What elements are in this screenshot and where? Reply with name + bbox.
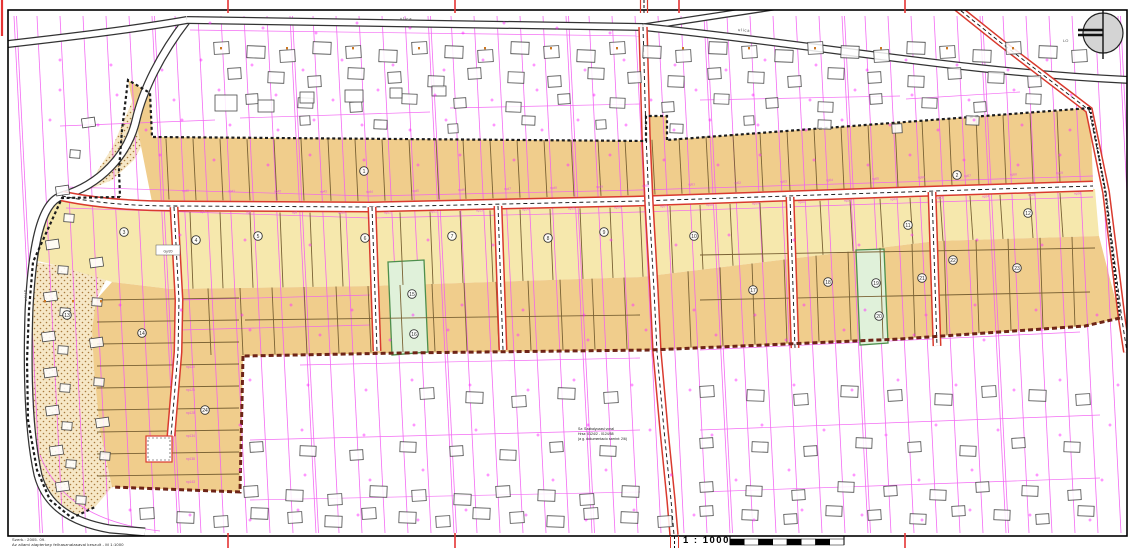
building [870,94,883,105]
building [744,116,754,126]
building [1078,506,1094,517]
building [708,68,722,80]
parcel-line [190,30,640,36]
building [300,446,316,457]
building [982,386,997,398]
building [412,490,427,502]
building [244,486,259,498]
parcel-label: np25 [1028,193,1036,197]
parcel-label: np59 [1056,171,1064,175]
building [445,46,463,59]
parcel-label: np42 [274,189,282,193]
zone-marker-number: 11 [905,223,910,229]
building [643,46,661,59]
building [100,452,111,461]
house-number-mark [286,47,288,49]
building [948,68,962,80]
parcel-label: np8 [246,210,252,214]
building [670,124,683,133]
building [379,50,397,63]
building [766,98,779,109]
building [350,450,364,461]
building [251,508,268,520]
building [973,50,991,63]
building [668,76,684,88]
parcel-label: np120 [186,365,195,369]
house-number-mark [44,300,46,302]
house-number-mark [72,300,74,302]
zone-marker-number: 24 [202,408,208,414]
parcel-label: np12 [430,209,438,213]
scale-bar-segment [759,539,773,545]
building [400,442,416,453]
building [390,88,402,98]
zone-marker-number: 5 [257,234,260,240]
building [974,102,987,113]
parcel-label: np138 [186,457,195,461]
building [500,450,516,461]
parcel-label: np134 [186,434,195,438]
parcel-label: np43 [320,189,328,193]
building [588,68,604,80]
building [1076,394,1091,406]
road-fill [187,20,643,27]
zone-marker-number: 21 [919,276,925,282]
parcel-label: np11 [384,210,391,214]
building [1068,490,1082,501]
parcel-label: np143 [186,480,195,484]
house-number-mark [880,47,882,49]
house-number-mark [484,47,486,49]
building [662,102,675,113]
scale-bar-segment [801,539,815,545]
building [522,116,535,125]
building [140,508,155,520]
house-number-mark [550,47,552,49]
parcel-label: np58 [1010,172,1018,176]
building [658,516,673,528]
parcel-label: np52 [734,181,742,185]
building [454,98,467,109]
zone-marker-number: 22 [950,258,956,264]
building [41,331,55,342]
building [604,392,619,404]
cul-de-sac [146,436,172,462]
building [268,72,284,84]
zone-marker-number: 10 [691,234,697,240]
building [752,442,768,453]
building [700,386,715,398]
building [228,68,242,80]
scale-bar-segment [830,539,844,545]
building [908,442,922,453]
building [258,100,274,112]
parcel-label: np7 [200,210,206,214]
building [988,72,1004,84]
parcel-label: np49 [596,185,604,189]
house-number-mark [616,47,618,49]
parcel-label: np22 [890,197,898,201]
building [300,92,314,103]
building [709,42,727,55]
building [804,446,818,457]
zone-marker-number: 2 [956,173,959,179]
scale-bar-segment [730,539,744,545]
building [1064,442,1080,453]
zone-marker-number: 4 [195,238,198,244]
zone-marker-number: 8 [547,236,550,242]
building [402,94,417,105]
parcel-label: np47 [504,187,512,191]
zone-marker-number: 15 [409,292,415,298]
building [700,438,714,449]
building [45,405,59,416]
parcel-label: np55 [872,177,880,181]
building [910,514,926,525]
building [450,446,464,457]
scale-bar-segment [773,539,787,545]
building [60,384,71,393]
building [246,94,259,105]
building [548,76,562,88]
parcel-line [700,415,1100,430]
house-number-mark [1012,47,1014,49]
building [621,512,638,524]
building [828,68,844,80]
footer-note-line2: Az allami alapterkep felhasznalasaval ke… [12,542,124,547]
parcel-label: np19 [752,201,760,205]
building [577,50,595,63]
building [1039,46,1057,59]
building [95,417,109,428]
building [436,516,451,528]
building [58,346,69,355]
building [328,494,343,506]
parcel-label: np26 [1074,191,1082,195]
building [478,50,494,63]
building [70,150,81,159]
building [892,124,902,134]
building [746,486,762,497]
building [348,68,364,80]
parcel-label: np14 [522,207,530,211]
building [428,76,444,88]
footer-notes: Szerk.: 2005. 09. Az allami alapterkep f… [12,537,124,547]
road-fill [643,3,800,27]
building [952,506,966,517]
parcel-label: np45 [412,189,420,193]
building [214,516,229,528]
building [841,386,858,398]
building [538,490,555,502]
street-name-label: ulica [738,27,751,33]
parcel-label: np57 [964,174,972,178]
green-space-parcel [388,260,428,355]
building [62,422,73,431]
building [826,506,842,517]
building [362,508,377,520]
building [747,390,764,402]
zone-marker-number: 3 [123,230,126,236]
parcel-label: np46 [458,188,466,192]
building [922,98,937,109]
building [43,367,57,378]
building [420,388,435,400]
building [345,90,363,102]
street-name-label: ulica [400,16,412,21]
building [1012,438,1026,449]
parcel-label: np51 [688,182,696,186]
building [874,50,890,63]
building [94,378,105,387]
house-number-mark [100,300,102,302]
building [66,460,77,469]
building [994,510,1010,521]
parcel-label: np23 [936,196,944,200]
scale-bar [730,536,844,545]
scale-bar-segment [816,539,830,545]
building [1029,390,1046,402]
building [676,50,692,63]
house-number-mark [352,47,354,49]
building [215,95,237,111]
building [788,76,802,88]
parcel-label: np44 [366,190,374,194]
building [250,442,264,453]
parcel-label: np125 [186,388,195,392]
building [89,337,103,348]
building [884,486,898,497]
building [976,482,990,493]
house-number-mark [418,47,420,49]
parcel-label: np48 [550,186,558,190]
building [742,510,758,521]
building [432,86,446,96]
building [550,442,564,453]
zone-marker-number: 14 [139,331,145,337]
building [374,120,387,129]
annotation-line3: (a g. dokumentacio szerint: 2/6) [578,437,627,442]
building [960,446,976,457]
building [45,239,59,250]
building [580,494,595,506]
parcel-line [240,112,430,118]
building [286,490,303,502]
parcel-label: np15 [568,206,576,210]
building [856,438,872,449]
building [818,120,831,129]
building [628,72,642,84]
house-number-mark [946,47,948,49]
zone-marker-number: 13 [64,313,70,319]
building [55,481,69,492]
building [794,394,809,406]
cadastral-map: Gy/20ulicaulicaulicanp40np41np42np43np44… [0,0,1129,548]
building [547,516,564,528]
building [784,514,798,525]
house-number-mark [220,47,222,49]
building [908,76,924,88]
house-number-mark [682,47,684,49]
building [508,72,524,84]
zone-marker-number: 19 [873,281,879,287]
building [600,446,616,457]
building [1028,76,1042,88]
house-number-mark [748,47,750,49]
parcel-line [300,358,640,365]
map-annotation: Sz: Szabalyozasi vonal Hrsz: 0124/2 - 01… [578,427,627,443]
building [473,508,490,520]
building [300,116,310,126]
zone-marker-number: 1 [363,169,366,175]
building [399,512,416,524]
parcel-label: np10 [338,210,346,214]
parcel-label: np17 [660,204,668,208]
building [622,486,639,498]
building [558,94,571,105]
parcel-label: np20 [798,200,806,204]
building [89,257,103,268]
road-fill [8,20,187,44]
zone-marker-number: 18 [825,280,831,286]
building [496,486,511,498]
parcel-label: np53 [780,179,788,183]
building [506,102,521,113]
building [177,512,194,524]
building [775,50,793,63]
building [930,490,946,501]
scale-bar-segment [787,539,801,545]
building [308,76,322,88]
building [466,392,483,404]
building [454,494,471,506]
parcel-label: np16 [614,205,622,209]
building [1072,50,1088,63]
building [64,214,75,223]
parcel-label: np56 [918,175,926,179]
zone-marker-number: 20 [876,314,882,320]
building [55,185,69,196]
building [511,42,529,55]
building [558,388,575,400]
building [49,445,63,456]
building [838,482,854,493]
building [288,512,303,524]
building [935,394,952,406]
zone-marker-number: 12 [1025,211,1031,217]
building [610,98,625,109]
street-name-label: ulica [23,290,29,303]
building [700,482,714,493]
building [1036,514,1050,525]
house-number-mark [814,47,816,49]
zone-marker-number: 16 [411,332,417,338]
building [841,46,859,59]
scale-label: 1 : 1000 [683,535,730,546]
zone-marker-number: 7 [451,234,454,240]
building [350,102,363,113]
building [448,124,458,134]
parcel-label: np54 [826,178,834,182]
building [81,117,95,128]
building [325,516,342,528]
cadastral-plan-stage: Gy/20ulicaulicaulicanp40np41np42np43np44… [0,0,1129,548]
building [76,496,87,505]
zone-marker-number: 6 [364,236,367,242]
zone-marker-number: 23 [1014,266,1020,272]
zone-marker-number: 9 [603,230,606,236]
building [1022,486,1038,497]
building [792,490,806,501]
building [966,116,979,125]
parcel-label: np18 [706,203,714,207]
parcel-label: np128 [186,411,195,415]
building [700,506,714,517]
parcel-label: np13 [476,208,484,212]
building [510,512,525,524]
building [247,46,265,59]
building [596,120,606,130]
building [748,72,764,84]
building [714,94,729,105]
building [868,510,882,521]
building [388,72,402,84]
building [468,68,482,80]
parcel-label: np50 [642,184,650,188]
building [313,42,331,55]
building [280,50,296,63]
scale-bar-segment [744,539,758,545]
building [370,486,387,498]
building [512,396,527,408]
parcel-label: np24 [982,194,990,198]
compass-label: LO [1063,38,1068,43]
parcel-label: np9 [292,210,298,214]
building [888,390,903,402]
building [58,266,69,275]
building [868,72,882,84]
parcel-label: np40 [182,189,190,193]
parcel-label: np41 [228,189,236,193]
zone-marker-number: 17 [750,288,756,294]
zone-code-label: Gy/20 [163,249,172,253]
building [907,42,925,55]
building [1026,94,1041,105]
parcel-label: np21 [844,198,852,202]
building [584,508,599,520]
building [818,102,833,113]
map-layers: Gy/20ulicaulicaulicanp40np41np42np43np44… [8,2,1129,535]
